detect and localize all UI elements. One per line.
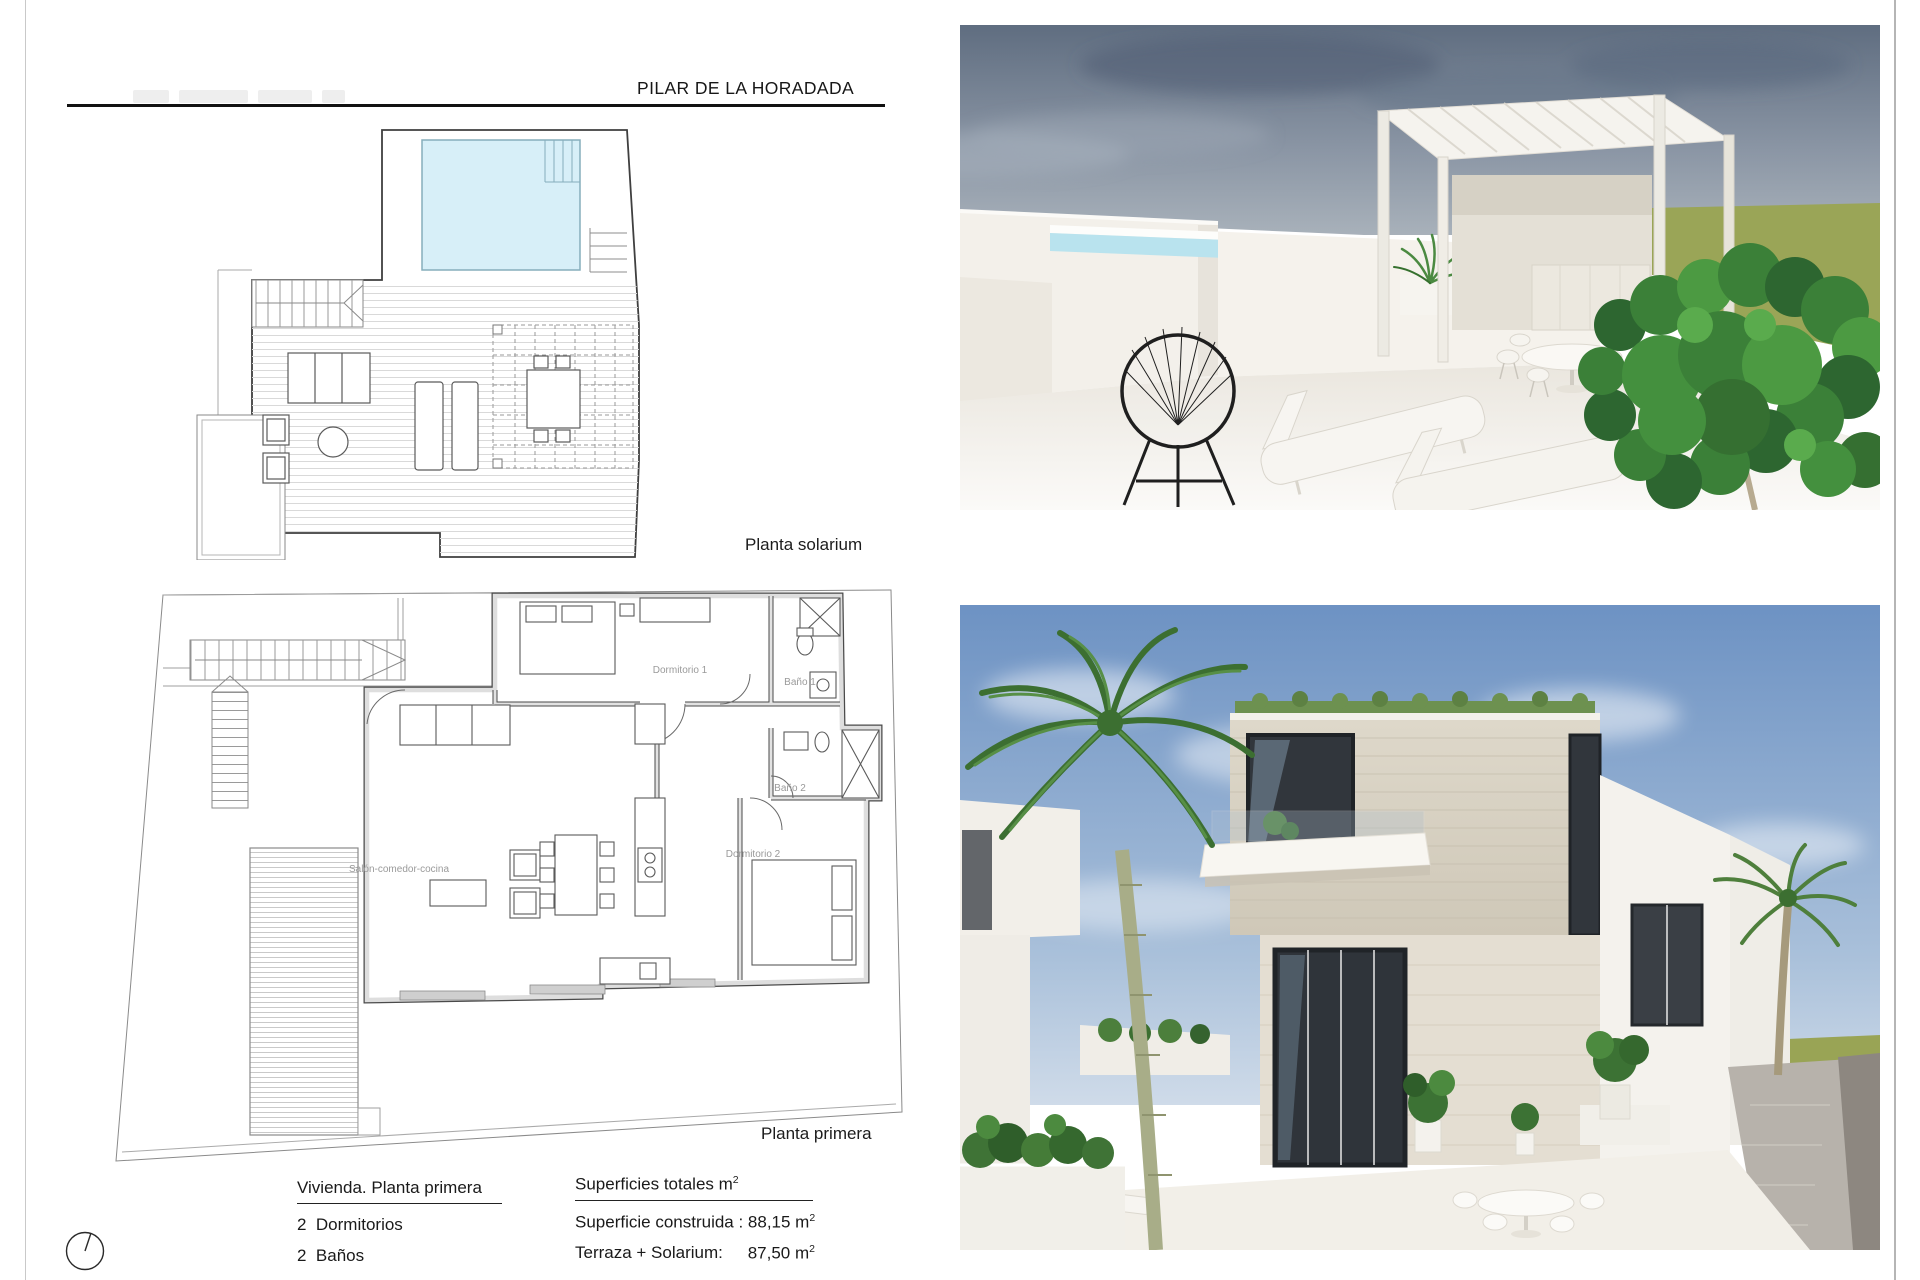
drawing-sheet: PILAR DE LA HORADADA	[0, 0, 1920, 1280]
built-area: Superficie construida : 88,15 m2	[575, 1212, 815, 1233]
dwelling-heading: Vivienda. Planta primera	[297, 1178, 502, 1204]
dwelling-bathrooms: 2 Baños	[297, 1246, 502, 1266]
room-label-salon: Salón-comedor-cocina	[349, 864, 449, 875]
planter-shrubs	[960, 1114, 1125, 1250]
room-label-bano-2: Baño 2	[774, 783, 806, 794]
faint-watermark	[133, 90, 345, 103]
plan-terrace-deck	[250, 848, 380, 1135]
caption-planta-solarium: Planta solarium	[745, 535, 862, 555]
floor-plan-solarium	[130, 115, 890, 560]
render-solarium-terrace	[960, 25, 1880, 510]
room-label-bano-1: Baño 1	[784, 677, 816, 688]
plan-stairs	[252, 280, 363, 327]
dwelling-bedrooms: 2 Dormitorios	[297, 1215, 502, 1235]
page-title: PILAR DE LA HORADADA	[637, 78, 854, 99]
plan-stairs	[190, 640, 405, 680]
plan-pool	[422, 140, 580, 270]
page-edge-left	[25, 0, 26, 1280]
acapulco-chair	[1122, 327, 1234, 507]
render-villa-exterior	[960, 605, 1880, 1250]
floor-plan-primera: Dormitorio 1 Baño 1 Baño 2 Dormitorio 2 …	[100, 580, 910, 1180]
areas-summary: Superficies totales m2 Superficie constr…	[575, 1174, 815, 1264]
title-rule	[67, 104, 885, 107]
caption-planta-primera: Planta primera	[761, 1124, 872, 1144]
areas-heading: Superficies totales m2	[575, 1174, 813, 1201]
room-label-dormitorio-1: Dormitorio 1	[653, 665, 707, 676]
compass-icon	[64, 1226, 110, 1278]
terrace-area: Terraza + Solarium: 87,50 m2	[575, 1243, 815, 1264]
dwelling-summary: Vivienda. Planta primera 2 Dormitorios 2…	[297, 1178, 502, 1266]
page-edge-right	[1894, 0, 1896, 1280]
room-label-dormitorio-2: Dormitorio 2	[726, 849, 780, 860]
